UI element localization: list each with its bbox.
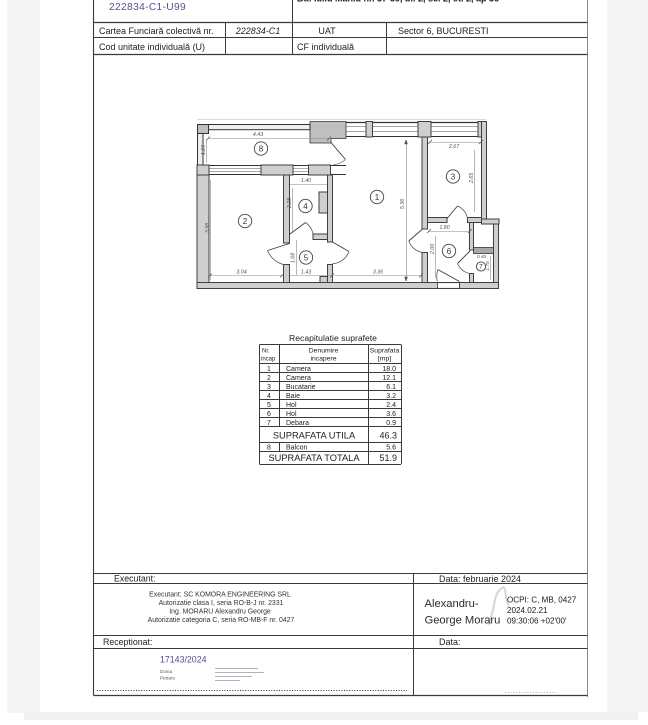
svg-text:incap: incap — [261, 357, 276, 363]
svg-text:3.36: 3.36 — [373, 270, 383, 276]
svg-text:George Moraru: George Moraru — [425, 615, 501, 627]
svg-text:222834-C1-U99: 222834-C1-U99 — [109, 2, 186, 13]
svg-text:1.80: 1.80 — [439, 225, 449, 231]
svg-text:Hol: Hol — [286, 402, 297, 409]
svg-text:Receptionat:: Receptionat: — [103, 637, 152, 647]
svg-text:Balcon: Balcon — [286, 444, 308, 451]
svg-text:SUPRAFATA TOTALA: SUPRAFATA TOTALA — [268, 453, 360, 463]
svg-text:Camera: Camera — [286, 375, 311, 382]
svg-text:8: 8 — [267, 444, 271, 451]
svg-text:1.43: 1.43 — [301, 270, 311, 276]
svg-text:0.40: 0.40 — [477, 254, 487, 260]
svg-text:Cartea Funciară colectivă nr.: Cartea Funciară colectivă nr. — [99, 26, 214, 36]
svg-text:Camera: Camera — [286, 366, 311, 373]
svg-text:Doina: Doina — [160, 669, 172, 674]
svg-text:Cod unitate individuală (U): Cod unitate individuală (U) — [99, 42, 205, 52]
svg-text:3.98: 3.98 — [205, 223, 211, 233]
svg-text:Sector 6, BUCURESTI: Sector 6, BUCURESTI — [398, 26, 489, 36]
svg-text:Denumire: Denumire — [309, 348, 339, 355]
svg-text:incapere: incapere — [310, 356, 336, 363]
svg-text:1.26: 1.26 — [201, 145, 207, 155]
svg-text:Bucatarie: Bucatarie — [286, 384, 316, 391]
svg-text:[mp]: [mp] — [378, 356, 391, 363]
svg-text:8: 8 — [259, 144, 264, 153]
svg-text:2.00: 2.00 — [430, 244, 436, 255]
svg-text:Alexandru-: Alexandru- — [425, 598, 479, 610]
svg-text:3.04: 3.04 — [236, 270, 246, 276]
svg-text:SUPRAFATA UTILA: SUPRAFATA UTILA — [273, 431, 356, 441]
svg-text:7: 7 — [267, 420, 271, 427]
svg-text:Debara: Debara — [286, 420, 309, 427]
svg-text:CF individuală: CF individuală — [297, 42, 354, 52]
svg-text:17143/2024: 17143/2024 — [160, 655, 207, 665]
svg-text:Data: februarie 2024: Data: februarie 2024 — [439, 574, 521, 584]
svg-text:Autorizatie clasa I, seria RO-: Autorizatie clasa I, seria RO-B-J nr. 23… — [159, 600, 284, 607]
svg-text:2.65: 2.65 — [469, 173, 475, 184]
svg-text:6.1: 6.1 — [386, 384, 396, 391]
svg-text:4.43: 4.43 — [253, 132, 263, 138]
svg-text:2.4: 2.4 — [386, 402, 396, 409]
svg-text:Ing. MORARU Alexandru George: Ing. MORARU Alexandru George — [169, 609, 271, 616]
svg-text:Executant:: Executant: — [114, 574, 156, 584]
svg-text:4: 4 — [303, 202, 308, 211]
svg-text:Baie: Baie — [286, 393, 300, 400]
svg-text:Nr.: Nr. — [262, 349, 270, 355]
svg-text:1.68: 1.68 — [290, 253, 296, 263]
svg-text:5: 5 — [267, 402, 271, 409]
svg-text:222834-C1: 222834-C1 — [235, 26, 281, 36]
svg-text:6: 6 — [447, 247, 452, 256]
svg-text:Petraru: Petraru — [160, 676, 176, 681]
svg-text:Executant: SC KOMORA ENGINEERI: Executant: SC KOMORA ENGINEERING SRL — [149, 592, 291, 599]
svg-text:2.67: 2.67 — [448, 144, 460, 150]
svg-text:51.9: 51.9 — [379, 453, 397, 463]
svg-text:Data:: Data: — [439, 637, 461, 647]
svg-text:2024.02.21: 2024.02.21 — [507, 606, 548, 615]
svg-text:3: 3 — [267, 384, 271, 391]
svg-text:5.36: 5.36 — [400, 199, 406, 209]
svg-text:3.6: 3.6 — [386, 411, 396, 418]
svg-text:2: 2 — [243, 217, 248, 226]
svg-text:1.40: 1.40 — [301, 178, 311, 184]
svg-text:09:30:06 +02'00': 09:30:06 +02'00' — [507, 617, 567, 626]
svg-text:46.3: 46.3 — [379, 431, 397, 441]
svg-text:12.1: 12.1 — [382, 375, 396, 382]
svg-text:Suprafata: Suprafata — [370, 348, 400, 355]
svg-text:5: 5 — [304, 253, 309, 262]
svg-text:0.9: 0.9 — [386, 420, 396, 427]
svg-text:2.28: 2.28 — [287, 198, 293, 209]
svg-text:Bd. Iuliu Maniu nr. 57-59, bl.: Bd. Iuliu Maniu nr. 57-59, bl. 2, sc. 2,… — [297, 0, 499, 4]
svg-text:18.0: 18.0 — [382, 366, 396, 373]
svg-text:UAT: UAT — [318, 26, 336, 36]
svg-text:1: 1 — [375, 193, 380, 202]
svg-text:Recapitulatie suprafete: Recapitulatie suprafete — [289, 333, 377, 343]
svg-text:5.6: 5.6 — [386, 444, 396, 451]
svg-text:Autorizatie categoria C, seria: Autorizatie categoria C, seria RO-MB-F n… — [148, 617, 295, 624]
svg-text:4: 4 — [267, 393, 271, 400]
svg-text:2: 2 — [267, 375, 271, 382]
svg-text:OCPI: C, MB, 0427: OCPI: C, MB, 0427 — [507, 596, 577, 605]
svg-text:3.2: 3.2 — [386, 393, 396, 400]
svg-text:7: 7 — [479, 264, 483, 271]
svg-text:6: 6 — [267, 411, 271, 418]
svg-text:Hol: Hol — [286, 411, 297, 418]
svg-text:1: 1 — [267, 366, 271, 373]
svg-text:3: 3 — [451, 172, 456, 181]
